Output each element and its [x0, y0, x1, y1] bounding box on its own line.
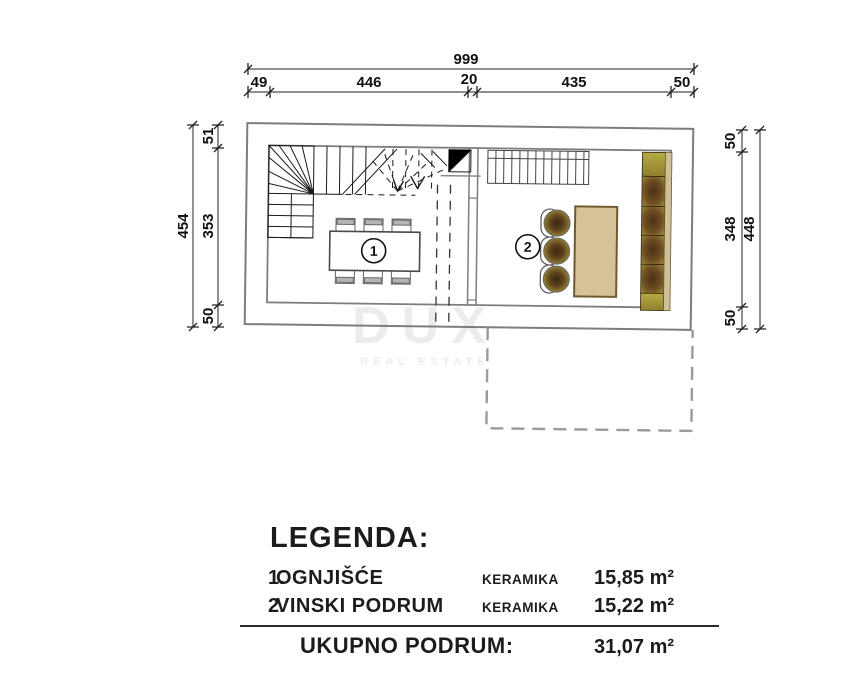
tasting-table: [574, 206, 617, 297]
legend-row-number: 1.: [240, 567, 276, 590]
dim-right-total: 448: [741, 216, 758, 241]
dim-top-seg-4: 50: [674, 74, 691, 91]
legend-row-number: 2.: [240, 595, 276, 618]
dim-top-seg-2: 20: [461, 71, 478, 88]
legend-rows: 1. OGNJIŠĆE KERAMIKA 15,85 m² 2. VINSKI …: [240, 567, 720, 618]
dim-left-seg-0: 51: [200, 128, 217, 145]
room-2-label: 2: [524, 239, 532, 255]
legend-row-material: KERAMIKA: [482, 572, 594, 587]
legend-title: LEGENDA:: [270, 522, 720, 555]
legend-total-row: UKUPNO PODRUM: 31,07 m²: [240, 633, 720, 659]
dim-right-seg-1: 348: [722, 216, 739, 241]
legend-row-material: KERAMIKA: [482, 600, 594, 615]
room-1-dining-area: 1: [329, 218, 420, 284]
top-shelf-band: [488, 150, 589, 184]
barrel-stools: [540, 209, 570, 293]
dim-left-seg-2: 50: [200, 308, 217, 325]
legend-total-label: UKUPNO PODRUM:: [240, 633, 594, 659]
dim-left-seg-1: 353: [200, 213, 217, 238]
building-plan: 1: [243, 123, 695, 431]
legend-divider: [240, 625, 719, 627]
dim-left-total: 454: [175, 213, 192, 239]
room-1-label: 1: [370, 243, 378, 259]
legend: LEGENDA: 1. OGNJIŠĆE KERAMIKA 15,85 m² 2…: [240, 522, 720, 659]
dim-top-seg-3: 435: [561, 74, 586, 91]
dim-right-seg-2: 50: [722, 310, 739, 327]
dim-right-seg-0: 50: [722, 133, 739, 150]
dim-top-seg-0: 49: [251, 74, 268, 91]
dim-top-total: 999: [453, 51, 478, 68]
legend-row-area: 15,22 m²: [594, 595, 720, 618]
legend-row-area: 15,85 m²: [594, 567, 720, 590]
dim-top-seg-1: 446: [356, 74, 381, 91]
legend-total-area: 31,07 m²: [594, 636, 720, 659]
wine-rack: [640, 152, 672, 310]
room-2-wine-cellar: 2: [486, 150, 672, 310]
floor-plan-page: DUX REAL ESTATE: [0, 0, 843, 693]
legend-row-name: OGNJIŠĆE: [276, 567, 482, 590]
terrace-outline: [486, 327, 692, 431]
floor-plan-drawing: 999 49 446 20 435 50 454 51 353 50 50 34…: [0, 0, 843, 470]
legend-row-name: VINSKI PODRUM: [276, 595, 482, 618]
